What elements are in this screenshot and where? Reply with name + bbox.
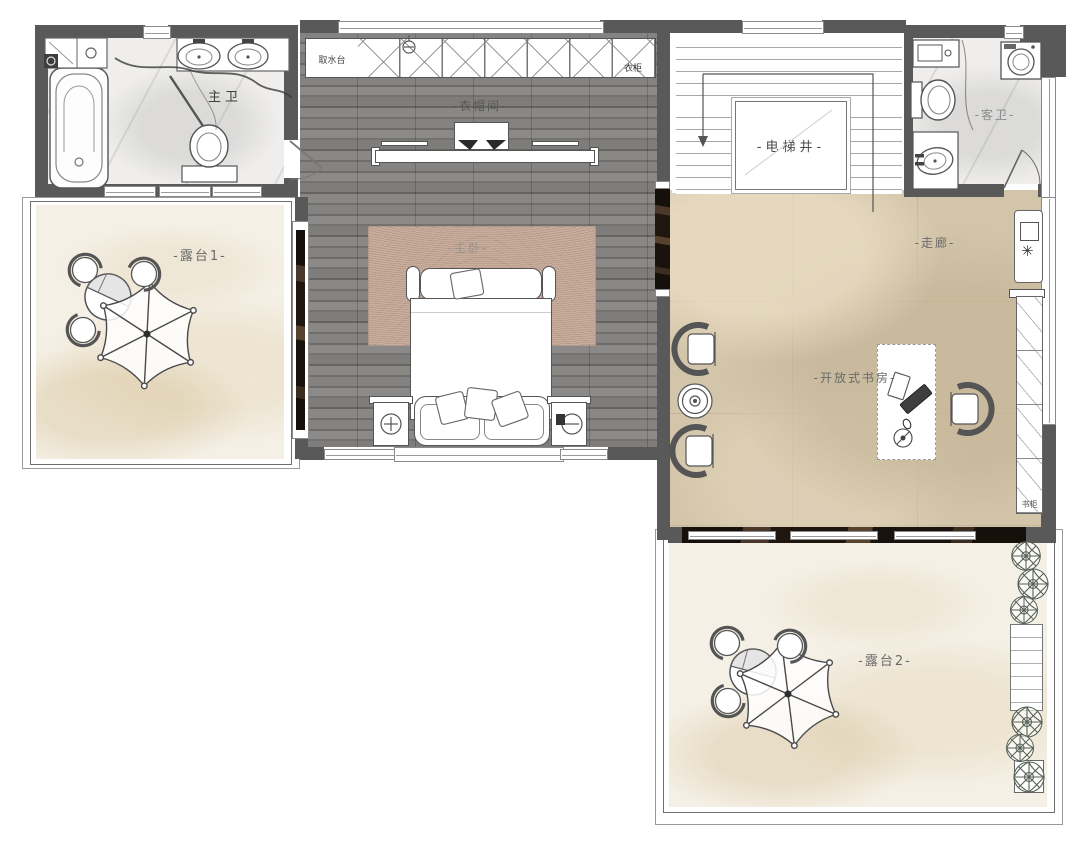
wall: [668, 527, 682, 543]
wall: [904, 184, 1004, 197]
headboard-post: [406, 266, 420, 302]
window: [104, 186, 156, 197]
wall: [35, 25, 145, 38]
corridor-study-floor: [668, 190, 1041, 527]
wall: [608, 447, 670, 460]
wall: [660, 20, 742, 33]
bookcase-label: 书柜: [1016, 499, 1043, 510]
window: [324, 449, 396, 460]
guest-bath-label: -客卫-: [950, 106, 1040, 123]
bed-sheet-line: [411, 312, 551, 313]
door-opening: [284, 140, 298, 180]
water-counter-label: 取水台: [306, 53, 358, 66]
open-study-label: -开放式书房-: [788, 369, 922, 386]
window: [143, 26, 171, 39]
wall: [657, 297, 670, 447]
bench-cushion: [484, 404, 544, 440]
clothes-rail: [381, 141, 428, 146]
tv-console: [375, 150, 595, 163]
master-bedroom-label: -主卧-: [418, 239, 518, 256]
terrace2-railing-inner: [663, 533, 1055, 813]
window: [790, 531, 878, 540]
wall: [904, 33, 913, 197]
study-desk: [877, 344, 936, 460]
wall: [657, 33, 670, 183]
wall: [1020, 25, 1066, 77]
wall: [1026, 527, 1042, 543]
window: [742, 21, 824, 34]
window: [688, 531, 776, 540]
terrace1-label: -露台1-: [150, 245, 250, 264]
wall: [300, 447, 324, 460]
tv-panel: [454, 122, 509, 150]
window: [212, 186, 262, 197]
stair-treads-left: [676, 106, 736, 194]
terrace2-bench-panel: [1010, 624, 1043, 711]
elevator-shaft-label: -电梯井-: [757, 136, 825, 155]
door-frame: [655, 181, 670, 189]
window: [1004, 26, 1024, 39]
terrace1-railing-inner: [30, 201, 292, 465]
wall: [168, 25, 298, 38]
wall: [822, 20, 906, 33]
nightstand: [551, 402, 587, 446]
wall: [35, 25, 48, 197]
wall: [1041, 423, 1056, 543]
wall: [295, 197, 308, 221]
closet-label: -衣帽间-: [425, 97, 535, 114]
window: [894, 531, 976, 540]
window-large: [394, 447, 564, 462]
doorway-threshold: [655, 189, 670, 289]
window: [560, 449, 608, 460]
floor-plan: -电梯井- ✳: [0, 0, 1080, 847]
wardrobe-x-cabinets: [358, 39, 655, 77]
nightstand: [373, 402, 409, 446]
corridor-label: -走廊-: [895, 234, 975, 251]
window: [338, 21, 604, 34]
stair-treads-right: [844, 106, 902, 194]
terrace2-label: -露台2-: [835, 650, 935, 669]
window-sill: [296, 230, 305, 430]
master-bath-floor: [48, 38, 284, 184]
window: [1041, 197, 1056, 425]
wall: [284, 25, 298, 140]
cabinet-inset: [1020, 222, 1039, 241]
planter-box: [1014, 760, 1044, 793]
master-bath-label: 主卫: [190, 86, 260, 105]
window: [1041, 77, 1056, 199]
bookshelf: [1016, 296, 1043, 514]
snowflake-icon: ✳: [1021, 244, 1034, 259]
window: [159, 186, 211, 197]
elevator-shaft: -电梯井-: [735, 101, 847, 190]
headboard-cushion: [420, 268, 542, 300]
wall: [300, 20, 340, 33]
door-frame: [655, 289, 670, 297]
bench-cushion: [420, 404, 480, 440]
wall: [904, 25, 1006, 38]
wardrobe-label: 衣柜: [612, 61, 654, 74]
clothes-rail: [532, 141, 579, 146]
stair-treads-upper: [676, 36, 902, 106]
headboard-post: [542, 266, 556, 302]
